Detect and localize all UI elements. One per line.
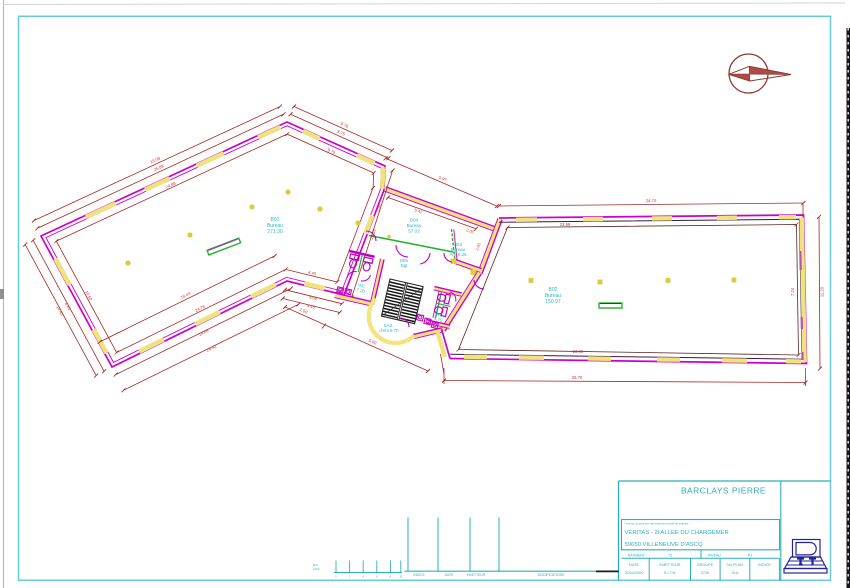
svg-text:01A: 01A <box>732 571 739 575</box>
svg-text:MODIFICATIONS: MODIFICATIONS <box>538 573 565 577</box>
svg-text:59650 VILLENEUVE D'ASCQ: 59650 VILLENEUVE D'ASCQ <box>625 542 703 548</box>
svg-text:150.97: 150.97 <box>545 299 561 305</box>
svg-text:Acc 6.26: Acc 6.26 <box>449 252 467 257</box>
svg-text:RJ: RJ <box>748 553 752 557</box>
svg-text:7.24: 7.24 <box>790 287 795 296</box>
svg-text:INDICE: INDICE <box>413 573 425 577</box>
svg-text:d'ent 9.70: d'ent 9.70 <box>379 328 399 333</box>
svg-text:Bureau: Bureau <box>407 223 422 228</box>
svg-text:No PLAN: No PLAN <box>727 563 743 567</box>
svg-text:23.96: 23.96 <box>573 349 584 354</box>
svg-text:57.02: 57.02 <box>408 229 420 234</box>
svg-text:271.30: 271.30 <box>267 229 283 235</box>
svg-text:INDICE: INDICE <box>758 563 771 567</box>
svg-text:B04: B04 <box>410 218 419 223</box>
svg-text:EMETTEUR: EMETTEUR <box>467 573 486 577</box>
svg-text:DATE: DATE <box>445 573 455 577</box>
svg-text:5726: 5726 <box>701 571 709 575</box>
svg-text:26.70: 26.70 <box>572 375 583 380</box>
svg-text:30/04/2000: 30/04/2000 <box>624 571 643 575</box>
svg-text:7 avenue du pont des sept plan: 7 avenue du pont des sept planches conse… <box>624 522 689 526</box>
svg-text:S.I.T.B.: S.I.T.B. <box>664 571 676 575</box>
svg-text:Dgt: Dgt <box>401 263 409 268</box>
svg-text:EMETTEUR: EMETTEUR <box>660 563 681 567</box>
svg-text:VERITAS - 2l ALLEE DU CHARGEME: VERITAS - 2l ALLEE DU CHARGEMER <box>625 530 729 536</box>
svg-text:DATE: DATE <box>629 563 639 567</box>
svg-text:11.20: 11.20 <box>820 286 825 297</box>
svg-text:GROUPE: GROUPE <box>697 563 714 567</box>
svg-text:24.70: 24.70 <box>646 198 657 203</box>
svg-text:NIVEAU :: NIVEAU : <box>708 553 723 557</box>
svg-text:23.69: 23.69 <box>560 222 571 227</box>
svg-text:BATIMENT :: BATIMENT : <box>628 553 647 557</box>
svg-text:75: 75 <box>668 553 672 557</box>
svg-text:BARCLAYS PIERRE: BARCLAYS PIERRE <box>681 486 766 496</box>
svg-text:1/100: 1/100 <box>313 567 320 571</box>
